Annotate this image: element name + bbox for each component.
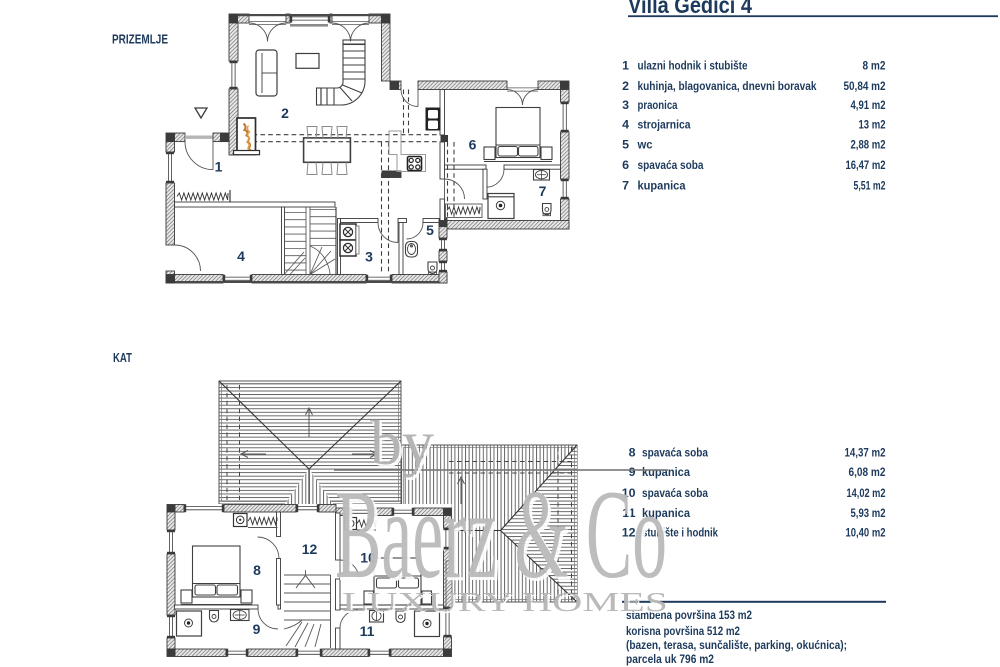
- svg-text:7: 7: [539, 183, 547, 199]
- svg-text:(bazen, terasa, sunčalište, pa: (bazen, terasa, sunčalište, parking, oku…: [626, 638, 847, 652]
- svg-text:1: 1: [215, 158, 223, 174]
- svg-text:14,02 m2: 14,02 m2: [847, 486, 886, 500]
- svg-text:3: 3: [365, 248, 373, 264]
- svg-text:KAT: KAT: [113, 351, 132, 365]
- svg-text:Baerz & Co: Baerz & Co: [335, 465, 667, 605]
- svg-text:16,47 m2: 16,47 m2: [846, 158, 886, 172]
- svg-text:praonica: praonica: [638, 98, 678, 112]
- svg-text:1: 1: [622, 59, 629, 73]
- svg-text:korisna površina 512 m2: korisna površina 512 m2: [626, 624, 740, 638]
- svg-text:PRIZEMLJE: PRIZEMLJE: [112, 32, 168, 47]
- svg-text:LUXURY HOMES: LUXURY HOMES: [342, 587, 668, 617]
- svg-text:wc: wc: [637, 138, 653, 152]
- svg-text:2,88 m2: 2,88 m2: [851, 138, 886, 152]
- svg-text:ulazni hodnik i stubište: ulazni hodnik i stubište: [638, 59, 748, 73]
- svg-text:6: 6: [469, 136, 477, 152]
- svg-text:12: 12: [302, 541, 318, 557]
- svg-text:parcela uk 796 m2: parcela uk 796 m2: [626, 652, 714, 666]
- svg-text:8: 8: [629, 446, 636, 460]
- svg-text:kuhinja, blagovanica, dnevni b: kuhinja, blagovanica, dnevni boravak: [638, 79, 817, 93]
- svg-text:4: 4: [622, 118, 629, 132]
- svg-text:5: 5: [426, 222, 434, 238]
- svg-text:2: 2: [622, 79, 629, 93]
- svg-text:5,93 m2: 5,93 m2: [851, 506, 886, 520]
- svg-text:spavaća soba: spavaća soba: [642, 446, 708, 460]
- svg-text:strojarnica: strojarnica: [638, 118, 691, 132]
- svg-text:4,91 m2: 4,91 m2: [851, 98, 886, 112]
- svg-text:spavaća soba: spavaća soba: [638, 158, 704, 172]
- svg-text:13 m2: 13 m2: [859, 118, 886, 132]
- svg-text:6,08 m2: 6,08 m2: [849, 465, 886, 479]
- svg-text:10,40 m2: 10,40 m2: [846, 525, 886, 539]
- svg-text:2: 2: [281, 105, 289, 121]
- svg-text:14,37 m2: 14,37 m2: [845, 446, 886, 460]
- svg-text:8 m2: 8 m2: [863, 59, 886, 73]
- svg-text:5,51 m2: 5,51 m2: [854, 178, 886, 192]
- svg-text:7: 7: [622, 178, 629, 192]
- svg-text:6: 6: [622, 158, 629, 172]
- svg-text:11: 11: [360, 623, 375, 639]
- svg-text:9: 9: [253, 621, 261, 637]
- svg-text:3: 3: [622, 98, 629, 112]
- svg-text:8: 8: [253, 562, 261, 578]
- svg-text:kupanica: kupanica: [638, 178, 686, 192]
- svg-text:5: 5: [622, 138, 629, 152]
- svg-text:4: 4: [237, 248, 245, 264]
- svg-text:50,84 m2: 50,84 m2: [844, 79, 886, 93]
